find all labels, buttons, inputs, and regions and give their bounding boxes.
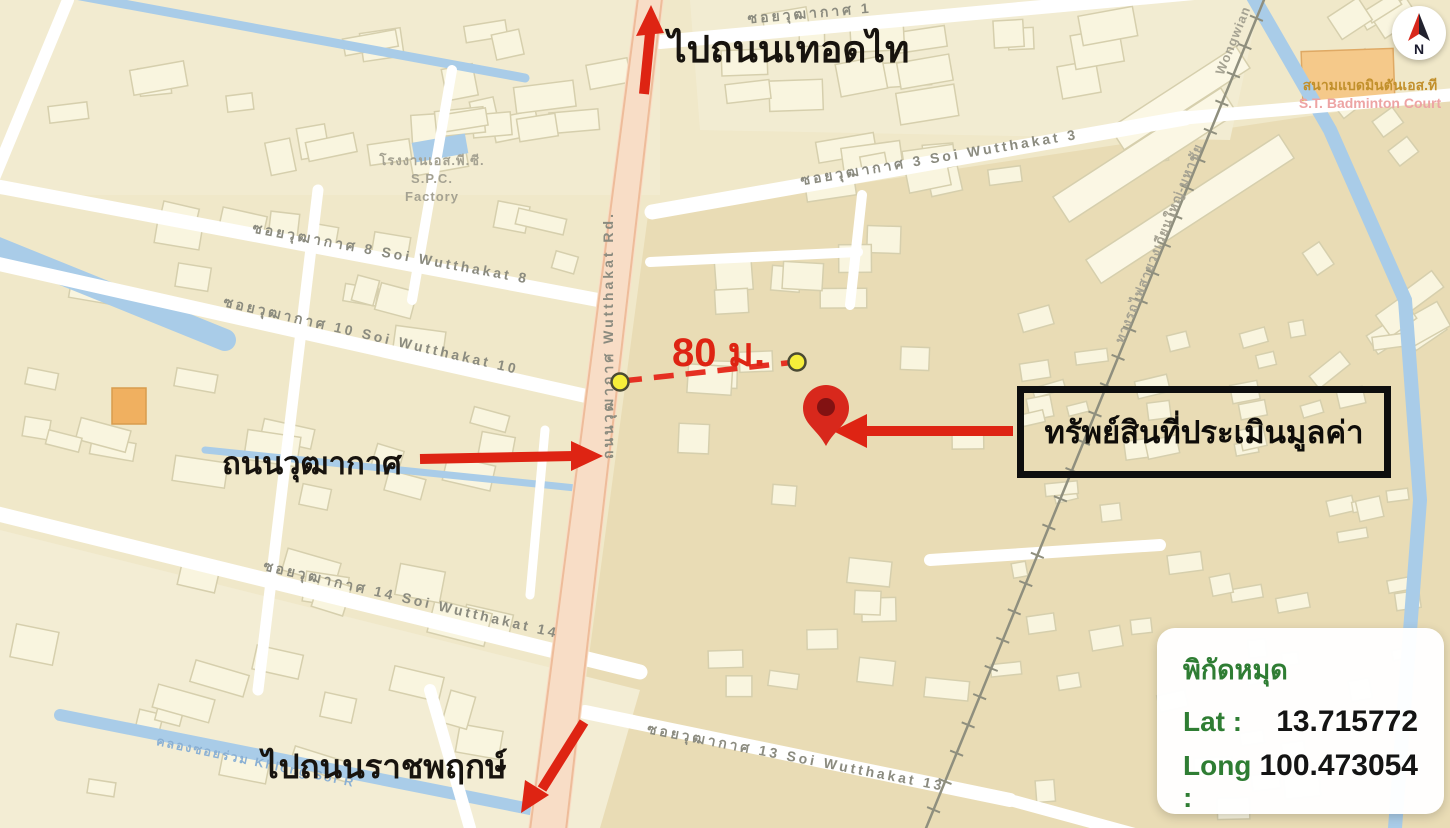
factory-label-en: Factory [405,189,459,204]
map-canvas[interactable]: ซอยวุฒากาศ 1 ซอยวุฒากาศ 3 Soi Wutthakat … [0,0,1450,828]
long-value: 100.473054 [1260,749,1419,783]
lat-value: 13.715772 [1276,705,1418,739]
lat-row: Lat : 13.715772 [1183,705,1418,739]
long-row: Long : 100.473054 [1183,749,1418,814]
coordinates-card: พิกัดหมุด Lat : 13.715772 Long : 100.473… [1157,628,1444,814]
label-wutthakat-road: ถนนวุฒากาศ [222,438,402,488]
badminton-label-en: S.T. Badminton Court [1299,95,1442,111]
compass-needle-icon: N [1392,6,1446,60]
compass-north-letter: N [1414,41,1424,57]
factory-label-abbr: S.P.C. [411,171,453,186]
label-to-thoedthai: ไปถนนเทอดไท [668,20,909,79]
property-callout-label: ทรัพย์สินที่ประเมินมูลค่า [1044,407,1363,457]
compass-control[interactable]: N [1392,6,1446,60]
property-callout-box: ทรัพย์สินที่ประเมินมูลค่า [1017,386,1391,478]
street-label-wutthakat-rd: ถนนวุฒากาศ Wutthakat Rd. [600,211,617,459]
label-to-ratchaphruek: ไปถนนราชพฤกษ์ [262,740,507,793]
long-label: Long : [1183,750,1260,814]
lat-label: Lat : [1183,706,1242,738]
coordinates-title: พิกัดหมุด [1183,648,1418,691]
badminton-label-th: สนามแบดมินตันเอส.ที [1303,77,1438,93]
label-distance-80m: 80 ม. [672,320,765,384]
factory-label-th: โรงงานเอส.พี.ซี. [378,152,484,168]
